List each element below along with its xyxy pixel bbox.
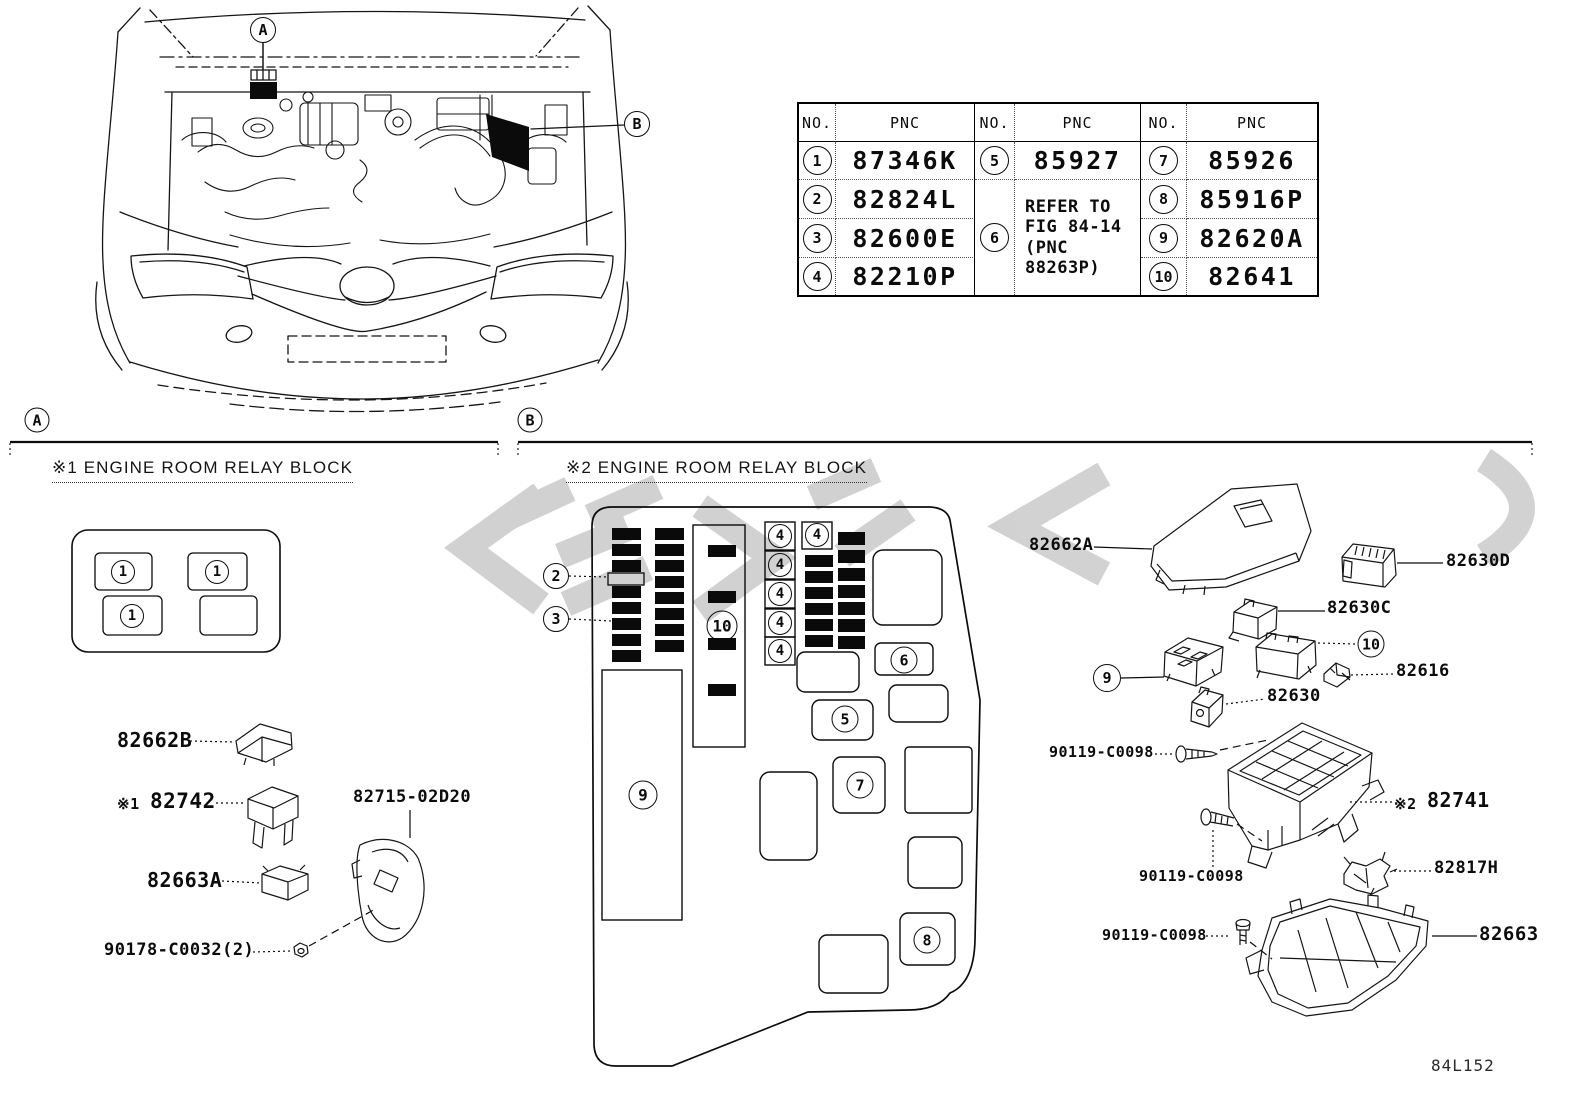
table-cell-no: 7 [1141,142,1187,180]
label-90119-c0098-c: 90119-C0098 [1102,928,1207,943]
table-cell-pnc: 82824L [836,180,975,219]
table-header-no-1b [799,104,836,142]
part-82663a-cover [262,865,308,900]
part-82630c-connector [1229,599,1277,641]
circled-number: 3 [803,224,832,253]
fusebox-callout-10: 10 [707,611,738,642]
label-82741: 82741 [1427,790,1490,810]
fusebox-callout-4: 4 [768,611,792,635]
part-82741-relay-block [1228,723,1384,868]
circled-number: 6 [980,223,1009,252]
circled-number: 1 [803,146,832,175]
table-cell-no: 10 [1141,258,1187,295]
table-cell-pnc-merged: REFER TO FIG 84-14 (PNC 88263P) [1015,180,1141,295]
table-cell-no: 2 [799,180,836,219]
label-82630: 82630 [1267,688,1321,705]
part-82663-lower-cover [1246,895,1428,1016]
part-82630-holder [1191,687,1223,727]
right-callout-9: 9 [1093,664,1121,692]
part-82817h-bracket [1344,852,1397,896]
table-cell-no: 5 [975,142,1015,180]
relay-a-slot-callout: 1 [120,604,144,628]
label-90178-c0032: 90178-C0032(2) [104,942,254,959]
section-a-title: ※1 ENGINE ROOM RELAY BLOCK [52,458,353,483]
fusebox-callout-5: 5 [832,706,859,733]
engine-room-relay-block-location [486,114,624,171]
parts-catalog-diagram-page: NO. PNC NO. PNC NO. PNC 1 87346K 2 82824… [0,0,1592,1099]
table-cell-pnc: 87346K [836,142,975,180]
table-cell-pnc: 85927 [1015,142,1141,180]
label-82742: 82742 [150,791,216,812]
car-front-sketch [96,6,629,412]
fusebox-callout-4: 4 [805,523,829,547]
fusebox-callout-3: 3 [543,606,569,632]
table-header-pnc-1: PNC [836,104,975,142]
fusebox-callout-8: 8 [914,927,941,954]
fusebox-callout-9: 9 [629,781,658,810]
fusebox-callout-6: 6 [891,647,918,674]
label-82616: 82616 [1396,663,1450,680]
table-cell-no: 4 [799,258,836,295]
right-callout-10: 10 [1358,631,1385,658]
table-header-pnc-3: PNC [1187,104,1317,142]
circled-number: 4 [803,262,832,291]
diagram-line-art [0,0,1592,1099]
part-callout9-block [1164,638,1223,686]
label-82630c: 82630C [1327,600,1391,617]
label-90119-c0098-b: 90119-C0098 [1139,869,1244,884]
bolt-90119-b [1201,809,1234,826]
label-82817h: 82817H [1434,860,1498,877]
section-b-title: ※2 ENGINE ROOM RELAY BLOCK [566,458,867,483]
relay-block-a-sketch [72,530,280,652]
bolt-90119-a [1176,746,1217,762]
table-cell-no: 1 [799,142,836,180]
part-82715-bracket [352,839,424,941]
circled-number: 8 [1149,185,1178,214]
part-82630d-connector [1342,544,1396,587]
table-cell-no: 3 [799,219,836,258]
section-b-marker: B [518,408,543,433]
part-callout10-block [1256,633,1316,679]
part-82662a-cover [1151,484,1311,595]
circled-number: 2 [803,185,832,214]
table-header-no-3: NO. [1141,104,1187,142]
label-82742-prefix: ※1 [117,797,140,812]
table-cell-no: 8 [1141,180,1187,219]
license-plate-recess [288,336,446,362]
fuses [612,528,865,696]
part-82616-wedge [1324,663,1350,687]
part-90178-nut [294,943,308,957]
car-callout-a: A [250,17,276,43]
brand-emblem [340,267,394,305]
part-82742-relay [248,787,298,848]
pnc-table: NO. PNC NO. PNC NO. PNC 1 87346K 2 82824… [797,102,1319,297]
table-header-pnc-2: PNC [1015,104,1141,142]
relay-a-slot-callout: 1 [205,560,229,584]
table-cell-no-merged: 6 [975,180,1015,295]
relay-a-slot-callout: 1 [111,560,135,584]
circled-number: 5 [980,146,1009,175]
label-82662a: 82662A [1029,537,1093,554]
label-82715-02d20: 82715-02D20 [353,789,471,806]
table-header-no-2: NO. [975,104,1015,142]
section-a-marker: A [25,408,50,433]
section-brackets [10,442,1532,458]
fusebox-callout-4: 4 [768,524,792,548]
fusebox-callout-4: 4 [768,639,792,663]
fusebox-callout-4: 4 [768,582,792,606]
fusebox-callout-2: 2 [543,563,569,589]
table-cell-pnc: 82210P [836,258,975,295]
relay-cavities [760,550,972,993]
figure-code: 84L152 [1431,1056,1495,1075]
table-cell-pnc: 85926 [1187,142,1317,180]
label-90119-c0098-a: 90119-C0098 [1049,745,1154,760]
table-cell-no: 9 [1141,219,1187,258]
bolt-90119-c [1236,920,1250,946]
label-82741-prefix: ※2 [1394,797,1417,812]
fusebox-callout-7: 7 [847,772,874,799]
label-82663a: 82663A [147,870,222,890]
label-82663: 82663 [1479,925,1539,944]
engine-bay-detail [182,92,567,247]
fusebox-callout-4: 4 [768,553,792,577]
section-a-part-sketches [236,724,424,957]
table-cell-pnc: 82641 [1187,258,1317,295]
label-82662b: 82662B [117,730,192,750]
table-cell-pnc: 82600E [836,219,975,258]
circled-number: 7 [1149,146,1178,175]
table-cell-pnc: 85916P [1187,180,1317,219]
car-callout-b: B [624,111,650,137]
table-cell-pnc: 82620A [1187,219,1317,258]
label-82630d: 82630D [1446,553,1510,570]
part-82662b-cover [236,724,292,766]
circled-number: 9 [1149,224,1178,253]
circled-number: 10 [1149,262,1178,291]
